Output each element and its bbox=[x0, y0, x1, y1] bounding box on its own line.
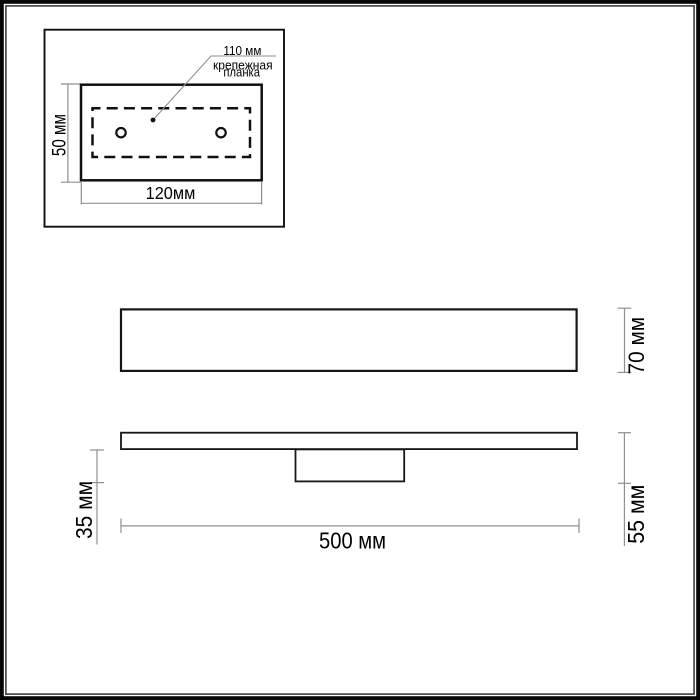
svg-text:35 мм: 35 мм bbox=[71, 481, 97, 539]
svg-text:120мм: 120мм bbox=[146, 183, 196, 203]
svg-text:70 мм: 70 мм bbox=[624, 317, 649, 375]
svg-text:50 мм: 50 мм bbox=[50, 114, 71, 156]
svg-text:110 мм: 110 мм bbox=[223, 44, 261, 58]
svg-text:500 мм: 500 мм bbox=[319, 527, 386, 553]
svg-text:55 мм: 55 мм bbox=[623, 485, 649, 544]
svg-text:планка: планка bbox=[223, 66, 260, 80]
